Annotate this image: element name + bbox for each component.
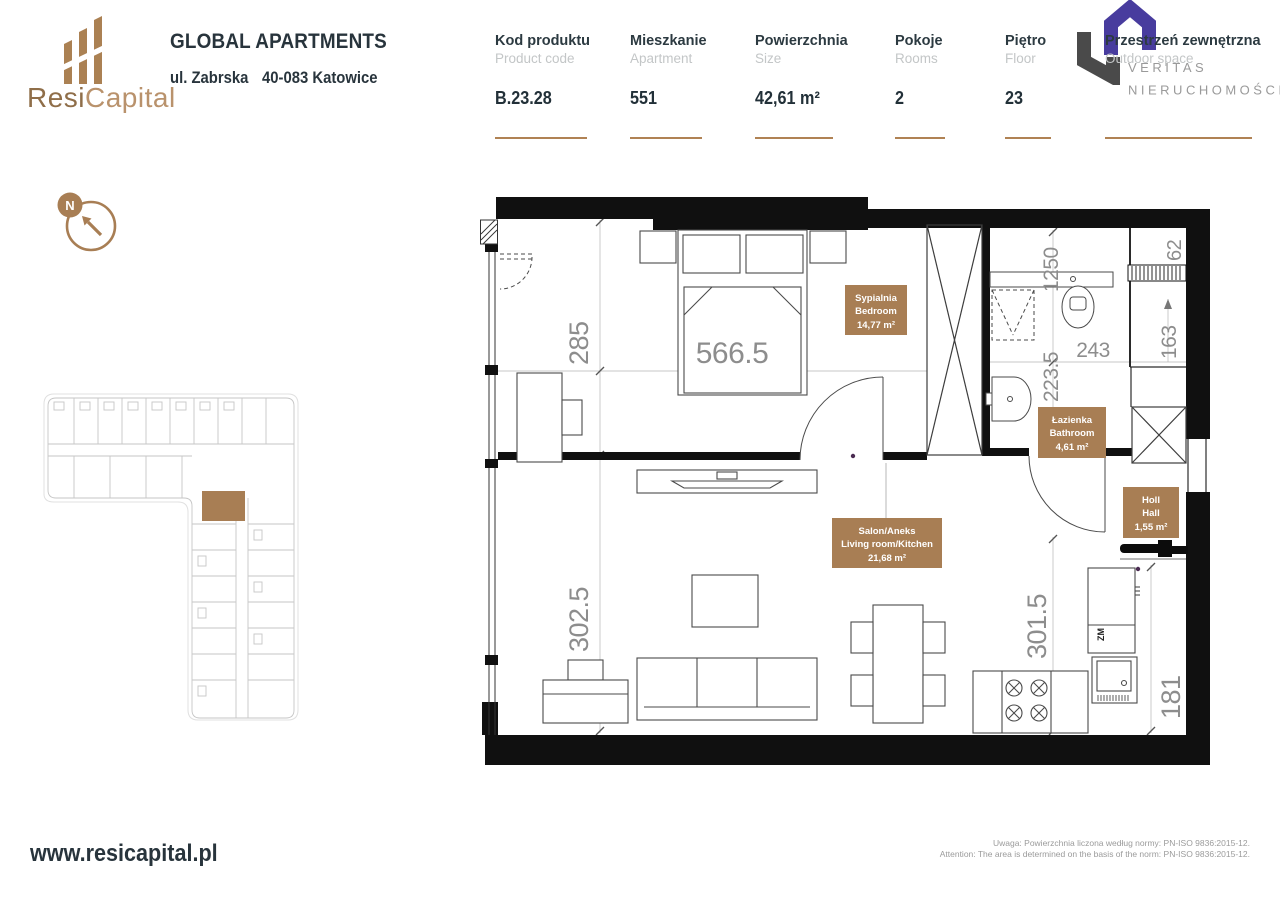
info-label-pl: Kod produktu	[495, 33, 590, 49]
kitchen-counter	[973, 671, 1088, 733]
dim-top-right: 62	[1164, 239, 1186, 261]
wall-marker-dot	[851, 454, 855, 458]
info-value: 2	[895, 88, 904, 109]
info-label-pl: Powierzchnia	[755, 33, 848, 49]
dim-bath-depth: 223.5	[1040, 352, 1063, 402]
dim-kitchen-width: 181	[1156, 675, 1186, 719]
room-label-bathroom: Łazienka Bathroom 4,61 m²	[1038, 407, 1106, 458]
info-col-apartment: Mieszkanie Apartment 551	[630, 33, 707, 109]
bathroom-door-arc	[1029, 456, 1105, 532]
svg-text:Łazienka: Łazienka	[1052, 415, 1093, 426]
info-label-en: Apartment	[630, 51, 707, 66]
tv-console	[637, 470, 817, 493]
side-table	[568, 660, 603, 680]
info-col-floor: Piętro Floor 23	[1005, 33, 1046, 109]
info-value: 23	[1005, 88, 1023, 109]
project-block: GLOBAL APARTMENTS ul. Zabrska 40-083 Kat…	[170, 30, 411, 89]
svg-text:Sypialnia: Sypialnia	[855, 293, 897, 304]
info-label-en: Product code	[495, 51, 590, 66]
room-label-bedroom: Sypialnia Bedroom 14,77 m²	[845, 285, 907, 335]
shower	[992, 290, 1034, 340]
dim-bedroom-depth: 285	[564, 321, 594, 365]
wardrobe	[927, 225, 982, 455]
info-col-outdoor-space: Przestrzeń zewnętrzna Outdoor space	[1105, 33, 1261, 109]
entrance-door	[1120, 540, 1188, 559]
footer-note-pl: Uwaga: Powierzchnia liczona według normy…	[830, 838, 1250, 849]
floor-plan: 285 566.5 302.5 1250 223.5 243 163 62 30…	[480, 197, 1210, 767]
nightstand	[810, 231, 846, 263]
footer-notes: Uwaga: Powierzchnia liczona według normy…	[830, 838, 1250, 860]
dim-corridor-width: 163	[1158, 325, 1181, 359]
info-value: 551	[630, 88, 657, 109]
brand-name: ResiCapital	[27, 82, 176, 114]
website-url: www.resicapital.pl	[30, 840, 239, 868]
address-street: ul. Zabrska	[170, 67, 248, 89]
hatched-wall	[1128, 265, 1186, 281]
nightstand	[640, 231, 676, 263]
brand-name-secondary: Capital	[85, 82, 176, 113]
oven	[1092, 657, 1137, 703]
living-furniture	[543, 470, 945, 723]
balcony-door-arc	[500, 254, 532, 289]
address-city: 40-083 Katowice	[262, 67, 378, 89]
arrow-head	[1164, 299, 1172, 309]
room-labels: Sypialnia Bedroom 14,77 m² Łazienka Bath…	[832, 285, 1179, 568]
dim-living-depth: 302.5	[564, 587, 594, 652]
dim-bedroom-width: 566.5	[696, 337, 769, 370]
svg-text:1,55 m²: 1,55 m²	[1135, 522, 1168, 533]
dim-kitchen-depth: 301.5	[1022, 594, 1052, 659]
info-value: 42,61 m²	[755, 88, 820, 109]
footer-note-en: Attention: The area is determined on the…	[830, 849, 1250, 860]
desk	[517, 373, 562, 462]
info-label-en: Floor	[1005, 51, 1046, 66]
info-label-pl: Piętro	[1005, 33, 1046, 49]
compass-north-label: N	[65, 198, 74, 213]
svg-text:Holl: Holl	[1142, 495, 1160, 506]
toilet	[1062, 286, 1094, 328]
room-label-living: Salon/Aneks Living room/Kitchen 21,68 m²	[832, 518, 942, 568]
info-col-size: Powierzchnia Size 42,61 m²	[755, 33, 848, 109]
pillow	[746, 235, 803, 273]
info-underline	[1105, 137, 1252, 139]
building-overview-plan	[40, 388, 310, 723]
info-label-en: Size	[755, 51, 848, 66]
info-label-en: Rooms	[895, 51, 943, 66]
info-value: B.23.28	[495, 88, 552, 109]
info-underline	[495, 137, 587, 139]
pillow	[683, 235, 740, 273]
dining-table	[851, 605, 945, 723]
project-title: GLOBAL APARTMENTS	[170, 30, 387, 54]
svg-text:Bedroom: Bedroom	[855, 306, 897, 317]
info-underline	[755, 137, 833, 139]
freezer-label: ZM	[1096, 628, 1106, 641]
info-label-en: Outdoor space	[1105, 51, 1261, 66]
window-wall	[481, 220, 499, 735]
info-underline	[1005, 137, 1051, 139]
info-label-pl: Przestrzeń zewnętrzna	[1105, 33, 1261, 49]
info-label-pl: Mieszkanie	[630, 33, 707, 49]
info-col-rooms: Pokoje Rooms 2	[895, 33, 943, 109]
north-compass-icon: N	[55, 190, 121, 256]
svg-text:Hall: Hall	[1142, 508, 1159, 519]
info-underline	[630, 137, 702, 139]
resicapital-logo-icon	[58, 14, 114, 84]
svg-text:4,61 m²: 4,61 m²	[1056, 442, 1089, 453]
wall-marker-dot	[1136, 567, 1140, 571]
svg-text:Salon/Aneks: Salon/Aneks	[858, 526, 915, 537]
brand-name-primary: Resi	[27, 82, 85, 113]
sink	[986, 377, 1031, 421]
svg-text:14,77 m²: 14,77 m²	[857, 320, 895, 331]
sofa	[637, 658, 817, 720]
coffee-table	[692, 575, 758, 627]
kitchen	[973, 568, 1140, 733]
armchair	[543, 680, 628, 723]
hall-closet	[1132, 407, 1186, 463]
room-label-hall: Holl Hall 1,55 m²	[1123, 487, 1179, 538]
dim-bath-top: 1250	[1040, 247, 1063, 292]
apartment-sheet: ResiCapital GLOBAL APARTMENTS ul. Zabrsk…	[0, 0, 1280, 905]
building-outline	[48, 398, 294, 718]
svg-text:Bathroom: Bathroom	[1050, 428, 1095, 439]
svg-text:21,68 m²: 21,68 m²	[868, 553, 906, 564]
info-col-product-code: Kod produktu Product code B.23.28	[495, 33, 590, 109]
info-underline	[895, 137, 945, 139]
dim-bath-width: 243	[1076, 339, 1110, 362]
highlighted-unit-marker	[202, 491, 245, 521]
desk-chair	[562, 400, 582, 435]
svg-text:Living room/Kitchen: Living room/Kitchen	[841, 539, 933, 550]
info-label-pl: Pokoje	[895, 33, 943, 49]
